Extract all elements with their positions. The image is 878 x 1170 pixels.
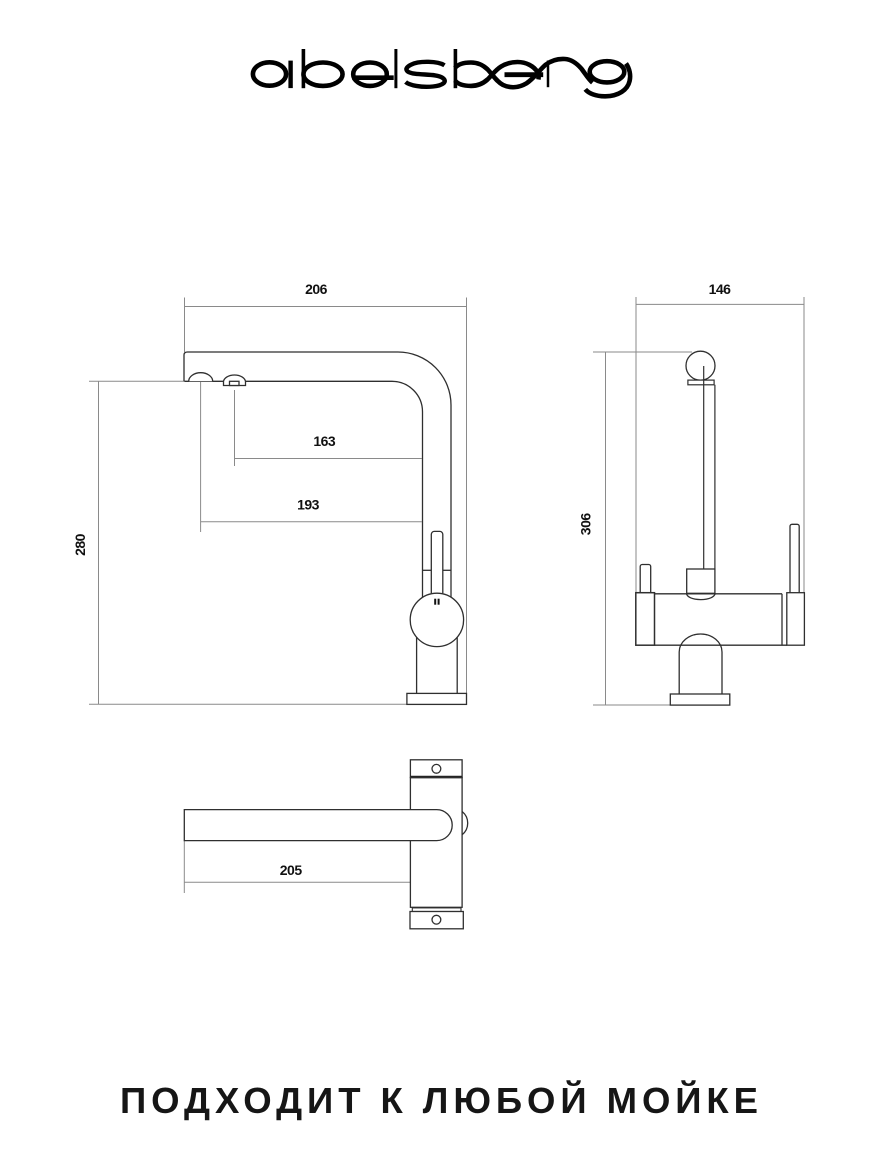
svg-text:280: 280	[72, 533, 88, 556]
svg-text:ПОДХОДИТ К ЛЮБОЙ МОЙКЕ: ПОДХОДИТ К ЛЮБОЙ МОЙКЕ	[120, 1079, 758, 1121]
svg-text:163: 163	[313, 433, 336, 449]
svg-text:193: 193	[297, 496, 320, 512]
svg-text:146: 146	[709, 281, 732, 297]
svg-text:306: 306	[578, 513, 594, 536]
svg-text:205: 205	[280, 862, 303, 878]
svg-text:206: 206	[305, 281, 328, 297]
